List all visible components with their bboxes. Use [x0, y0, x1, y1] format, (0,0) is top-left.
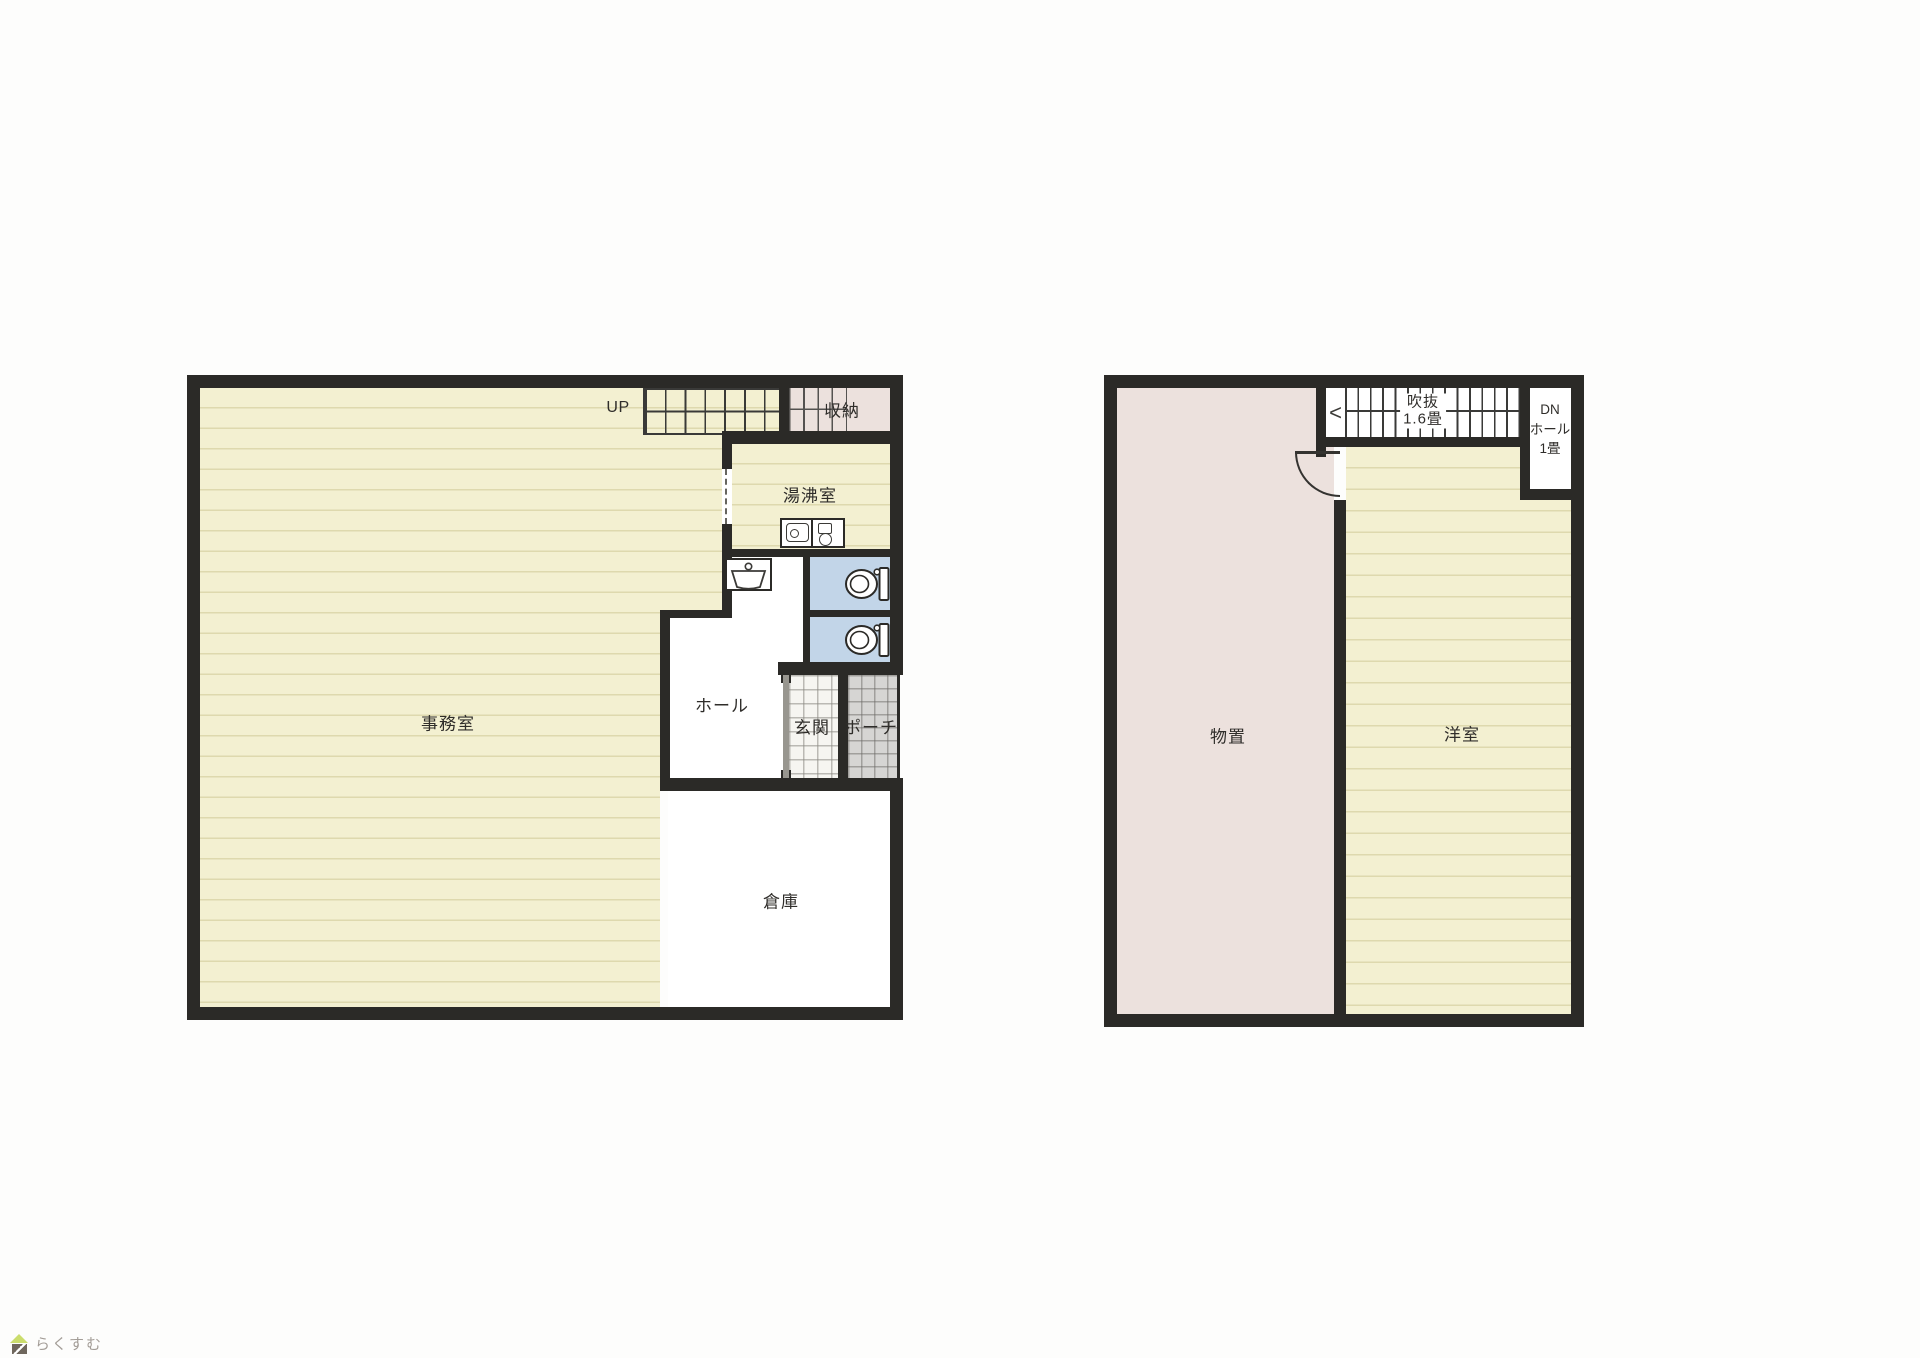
floor1-plan: UP 収納 湯沸室 事務室 ホール 玄関 ポーチ 倉庫	[187, 375, 903, 1020]
entrance-sliding-door	[783, 675, 789, 778]
counter-divider	[811, 520, 813, 546]
wall	[1520, 489, 1571, 500]
stairs-up-label: UP	[606, 399, 629, 417]
storage-label: 物置	[1210, 723, 1246, 748]
wall	[722, 444, 732, 469]
western-room-label: 洋室	[1444, 721, 1480, 746]
kitchenette-label: 湯沸室	[783, 482, 837, 507]
wall	[722, 549, 890, 557]
porch-label: ポーチ	[844, 714, 898, 739]
wall	[1571, 375, 1584, 1027]
wall	[1334, 500, 1346, 1014]
wall	[187, 375, 903, 388]
wall	[1316, 437, 1520, 447]
kitchen-sink-icon	[780, 518, 845, 548]
wall	[1520, 388, 1530, 489]
wall	[779, 388, 789, 431]
logo-roof	[10, 1334, 28, 1343]
logo-base	[12, 1344, 27, 1354]
heater-box	[818, 523, 832, 534]
wall	[1104, 375, 1117, 1027]
wall	[803, 557, 810, 675]
wall	[890, 375, 903, 675]
wall	[890, 778, 903, 1020]
house-logo-icon	[10, 1334, 29, 1354]
wall	[722, 431, 890, 444]
stair-direction-arrow-icon: <	[1326, 388, 1345, 437]
wall	[660, 618, 670, 778]
door-opening-dashed	[722, 469, 732, 524]
room-office	[200, 388, 660, 1007]
wall	[1104, 1014, 1584, 1027]
site-logo: らくすむ	[10, 1333, 103, 1354]
down-hall-label: DN ホール 1畳	[1530, 400, 1571, 459]
wall	[187, 1007, 903, 1020]
hall-label: ホール	[695, 692, 749, 717]
warehouse-label: 倉庫	[763, 888, 799, 913]
wall	[1104, 375, 1584, 388]
room-storage	[1117, 388, 1334, 1014]
atrium-label: 吹抜 1.6畳	[1400, 394, 1446, 429]
wall	[778, 662, 903, 675]
floorplan-page: UP 収納 湯沸室 事務室 ホール 玄関 ポーチ 倉庫 <	[0, 0, 1920, 1358]
wall	[660, 610, 732, 618]
washbasin-icon	[725, 558, 772, 591]
closet-label: 収納	[824, 397, 860, 422]
stairs-up	[643, 388, 782, 435]
wall	[660, 778, 903, 791]
sink-drain	[790, 529, 799, 538]
wall	[187, 375, 200, 1020]
wall	[810, 610, 890, 617]
floor2-plan: < 吹抜 1.6畳 DN ホール 1畳 物置 洋室	[1104, 375, 1584, 1027]
toilet-icon	[842, 565, 890, 603]
toilet-icon	[842, 621, 890, 659]
heater-burner	[819, 533, 832, 546]
office-label: 事務室	[421, 710, 475, 735]
logo-text: らくすむ	[35, 1333, 103, 1354]
entrance-label: 玄関	[794, 714, 830, 739]
